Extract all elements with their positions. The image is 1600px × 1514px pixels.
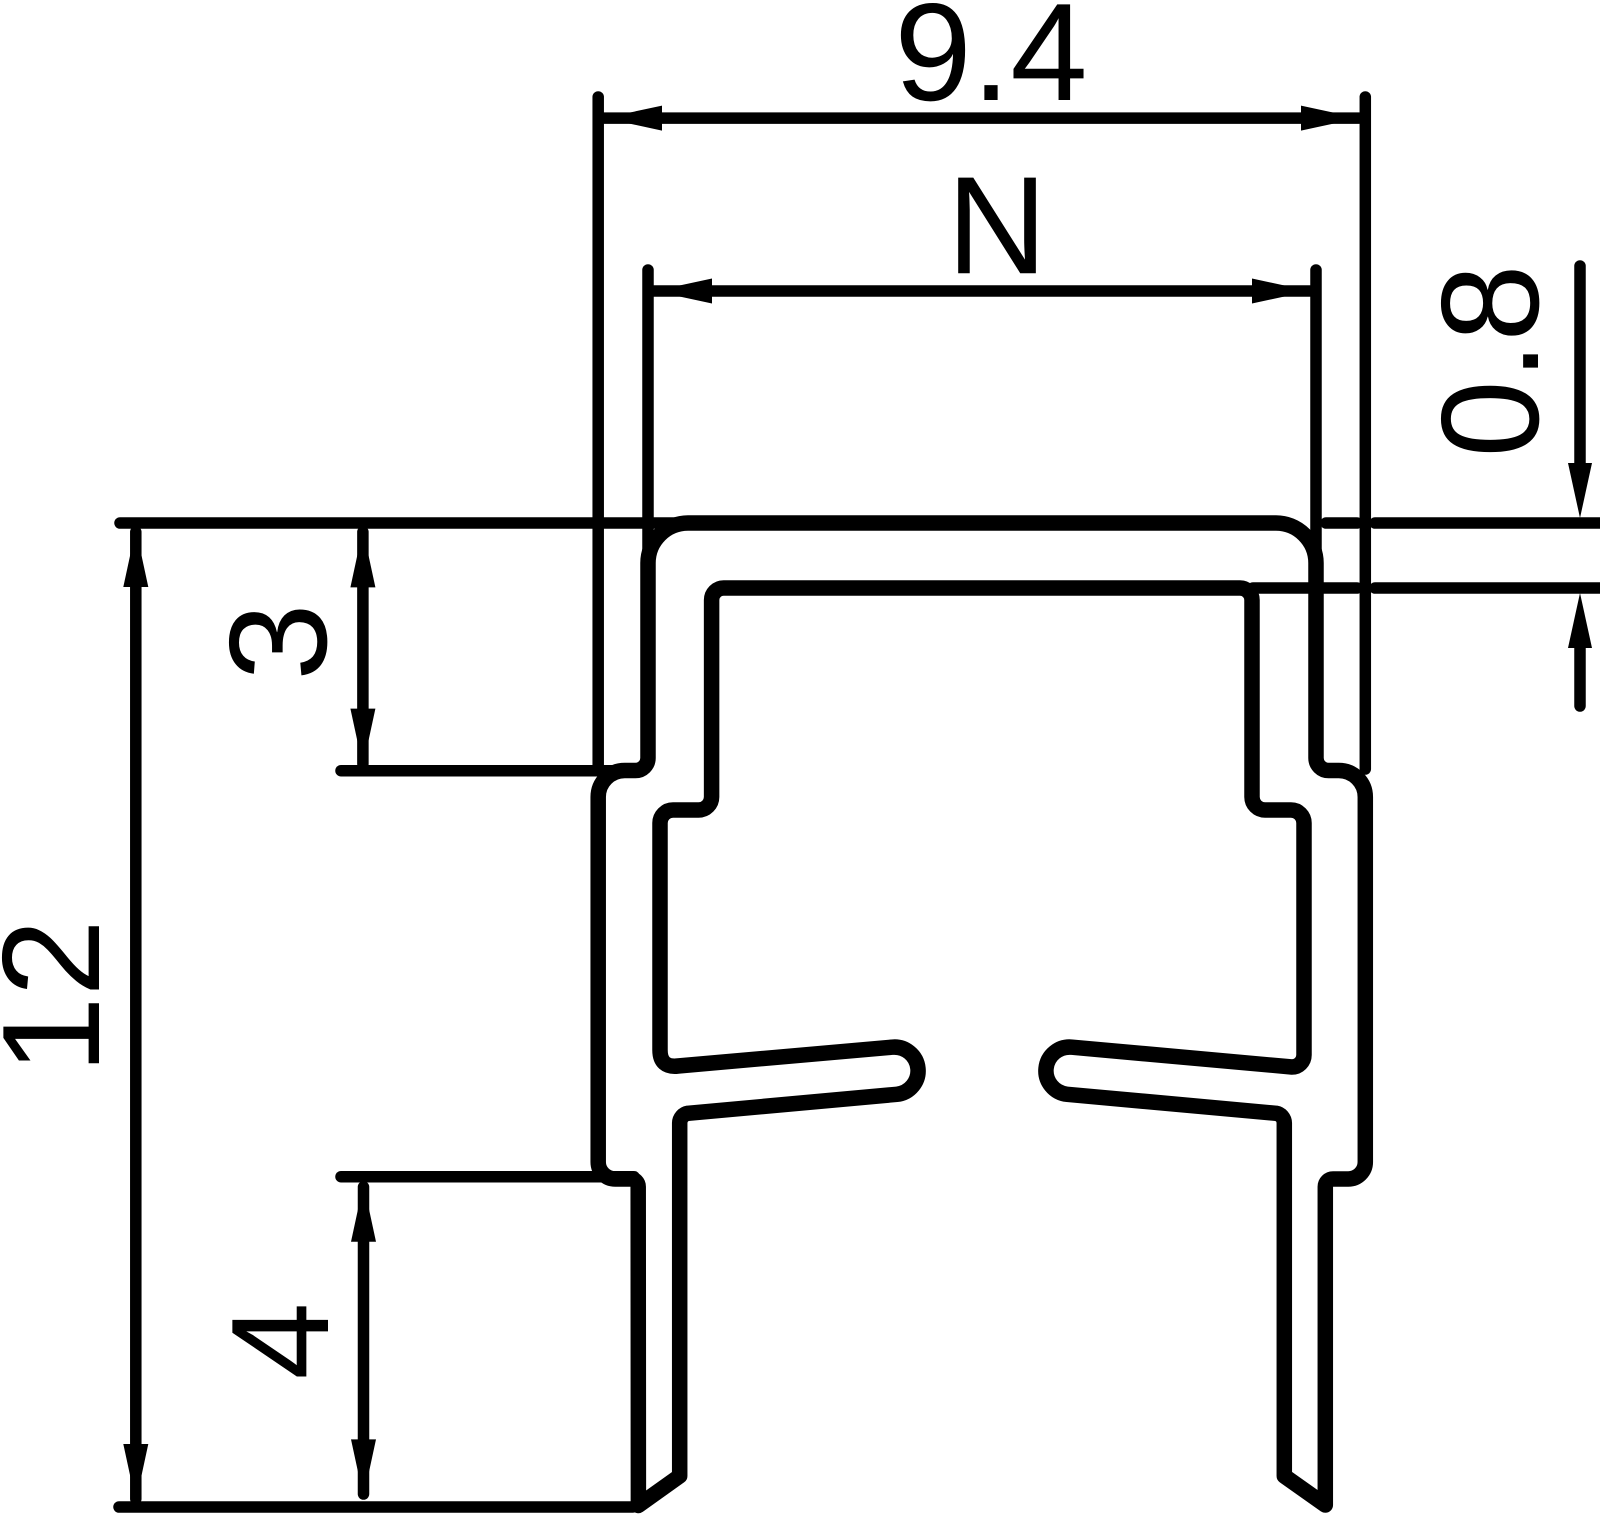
svg-text:12: 12 — [0, 919, 129, 1074]
svg-text:9.4: 9.4 — [894, 0, 1087, 130]
svg-text:N: N — [947, 148, 1047, 303]
svg-text:0.8: 0.8 — [1413, 264, 1568, 457]
svg-text:4: 4 — [203, 1302, 358, 1379]
svg-text:3: 3 — [201, 603, 356, 680]
